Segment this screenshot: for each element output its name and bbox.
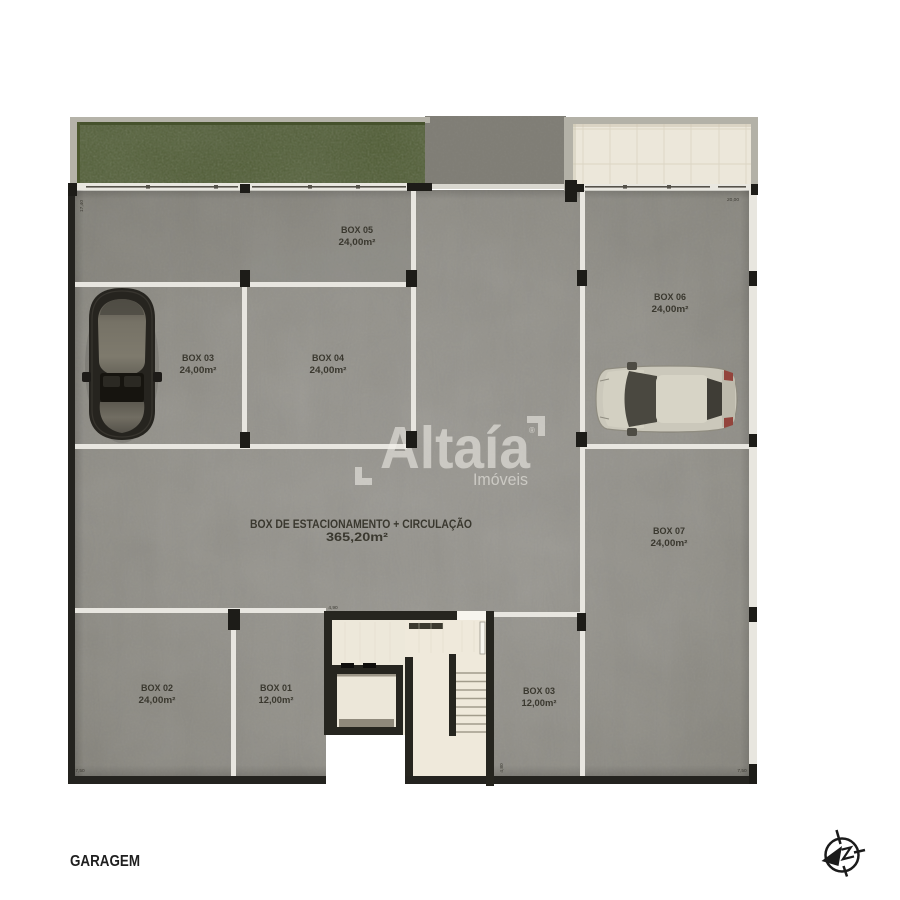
svg-text:24,00m²: 24,00m² — [180, 365, 217, 375]
svg-text:4,90: 4,90 — [328, 605, 338, 611]
svg-text:Imóveis: Imóveis — [473, 470, 528, 489]
svg-text:BOX 05: BOX 05 — [341, 225, 373, 235]
svg-text:24,00m²: 24,00m² — [652, 304, 689, 314]
svg-text:BOX 04: BOX 04 — [312, 353, 344, 363]
svg-text:12,00m²: 12,00m² — [259, 695, 294, 705]
svg-text:BOX 01: BOX 01 — [260, 683, 292, 693]
svg-text:7,50: 7,50 — [75, 768, 85, 774]
svg-text:7,50: 7,50 — [737, 768, 747, 774]
svg-text:365,20m²: 365,20m² — [326, 530, 388, 544]
svg-text:GARAGEM: GARAGEM — [70, 853, 140, 870]
svg-text:20,00: 20,00 — [727, 197, 739, 203]
svg-text:BOX 03: BOX 03 — [182, 353, 214, 363]
svg-text:24,00m²: 24,00m² — [651, 538, 688, 548]
svg-text:4,80: 4,80 — [499, 763, 505, 773]
svg-text:BOX DE ESTACIONAMENTO + CIRCU: BOX DE ESTACIONAMENTO + CIRCULAÇÃO — [250, 516, 472, 531]
svg-text:BOX 06: BOX 06 — [654, 292, 686, 302]
svg-text:24,00m²: 24,00m² — [310, 365, 347, 375]
svg-text:BOX 03: BOX 03 — [523, 686, 555, 696]
svg-text:®: ® — [529, 426, 535, 435]
svg-text:17,40: 17,40 — [79, 200, 85, 212]
svg-text:12,00m²: 12,00m² — [522, 698, 557, 708]
svg-text:24,00m²: 24,00m² — [339, 237, 376, 247]
svg-text:BOX 07: BOX 07 — [653, 526, 685, 536]
svg-text:24,00m²: 24,00m² — [139, 695, 176, 705]
svg-text:BOX 02: BOX 02 — [141, 683, 173, 693]
